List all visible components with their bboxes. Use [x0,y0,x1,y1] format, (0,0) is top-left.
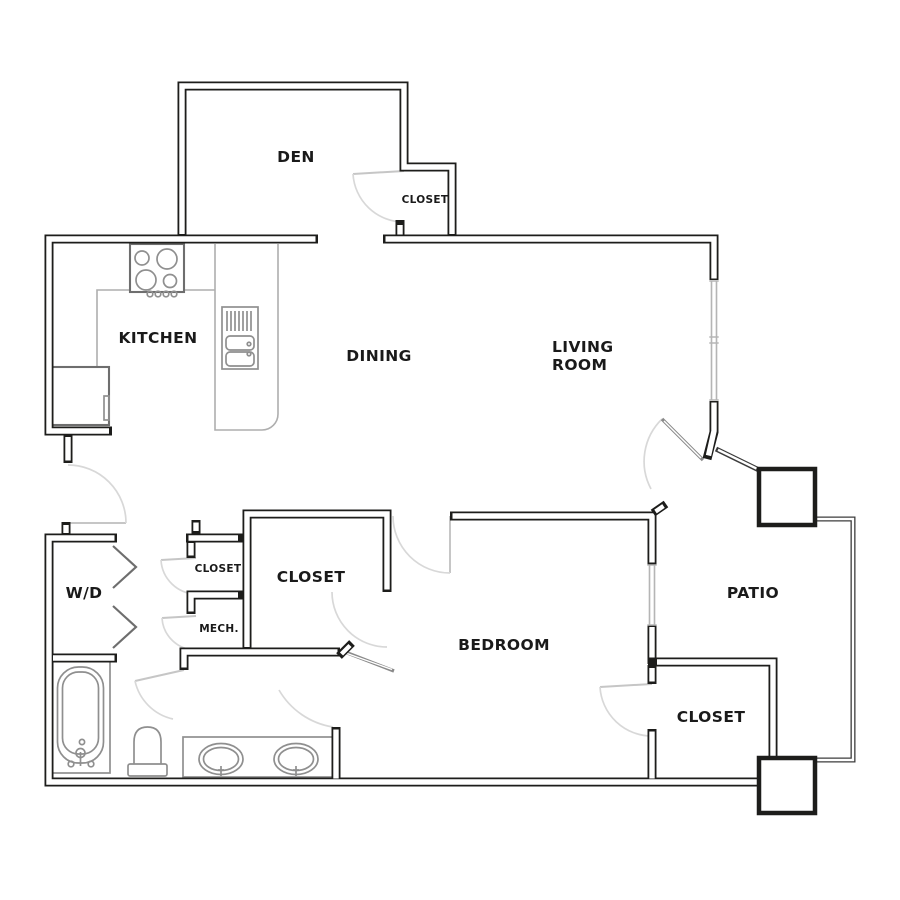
patio-pillar-bottom [759,758,815,813]
refrigerator-icon [51,367,109,425]
room-label-washer-dryer: W/D [66,584,103,602]
floor-plan-svg: DEN CLOSET KITCHEN DINING LIVING ROOM W/… [0,0,900,900]
stove-icon [130,244,184,297]
room-label-kitchen: KITCHEN [118,329,197,347]
floor-plan: DEN CLOSET KITCHEN DINING LIVING ROOM W/… [0,0,900,900]
room-label-hall-closet: CLOSET [195,563,242,575]
bedroom-window-icon [647,565,656,625]
room-label-living-line2: ROOM [552,356,607,374]
room-label-living-line1: LIVING [552,338,614,356]
room-label-den: DEN [277,148,315,166]
patio-pillar-top [759,469,815,525]
room-label-bedroom-closet: CLOSET [277,568,346,586]
room-label-den-closet: CLOSET [402,194,449,206]
room-label-dining: DINING [346,347,411,365]
room-label-master-closet: CLOSET [677,708,746,726]
room-label-mechanical: MECH. [199,623,239,635]
room-label-bedroom: BEDROOM [458,636,550,654]
living-room-window-icon [709,280,718,401]
room-label-patio: PATIO [727,584,779,602]
